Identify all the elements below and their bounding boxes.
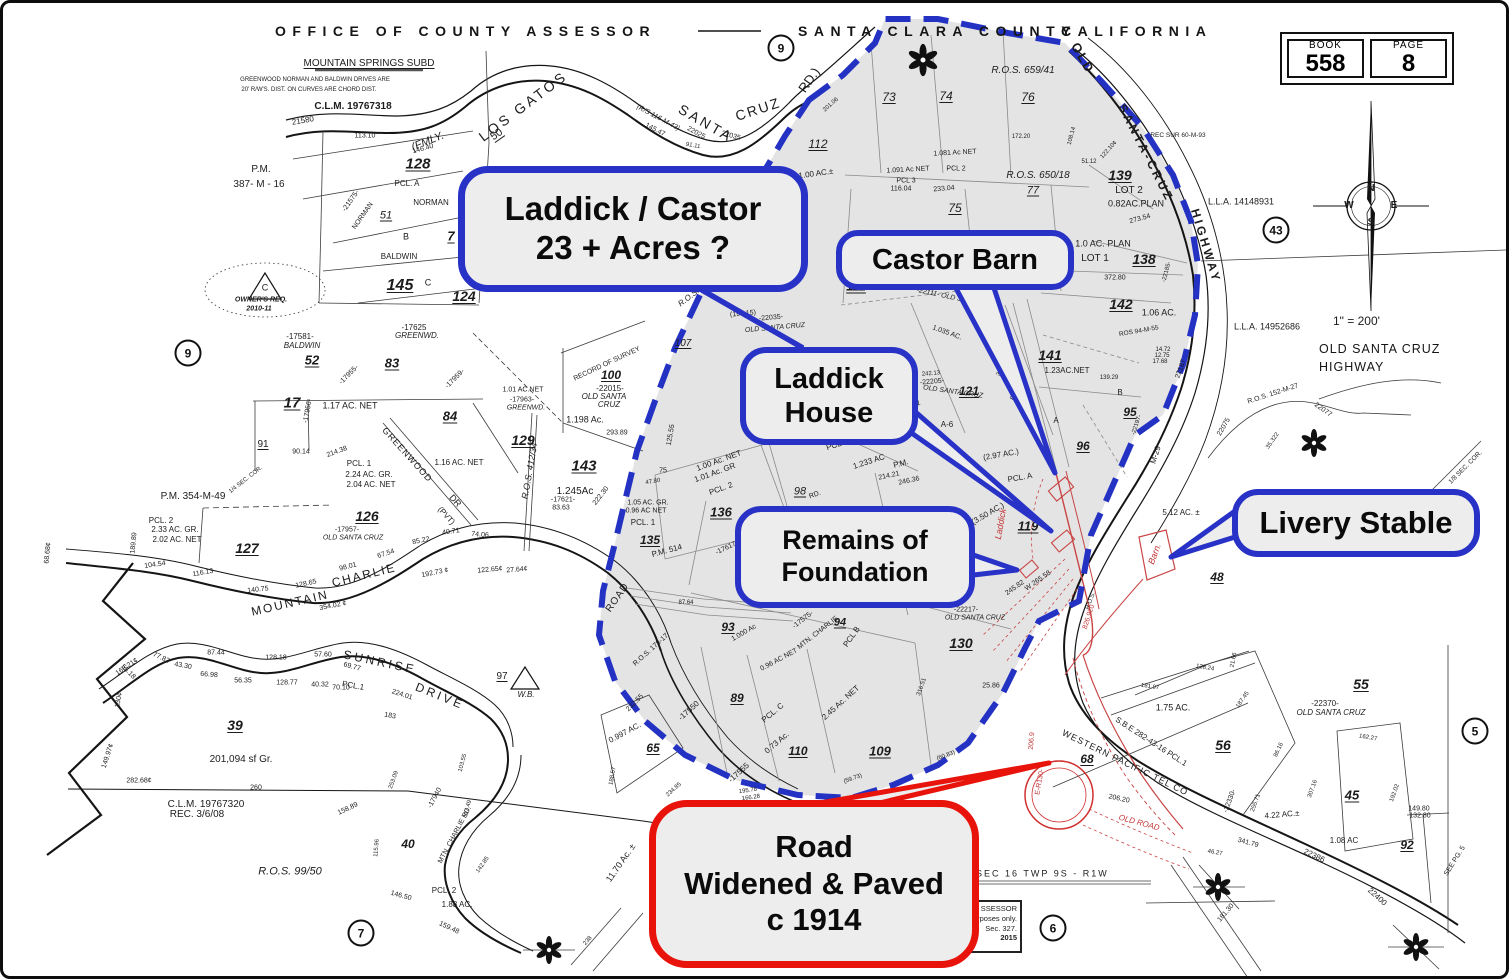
callout-laddick-house: Laddick House	[740, 347, 918, 445]
circled-number: 9	[175, 340, 202, 367]
book-cell: BOOK 558	[1287, 39, 1364, 78]
highway-label-line2: HIGHWAY	[1319, 359, 1440, 377]
circled-number: 5	[1462, 718, 1489, 745]
highway-label-line1: OLD SANTA CRUZ	[1319, 341, 1440, 359]
callout-text: Road	[775, 829, 853, 866]
callout-remains-of-foundation: Remains of Foundation	[735, 506, 975, 608]
page-number: 8	[1402, 52, 1415, 76]
callout-text: Laddick / Castor	[505, 190, 762, 229]
callout-text: House	[785, 396, 874, 430]
callout-text: Laddick	[774, 362, 884, 396]
callout-text: c 1914	[767, 902, 862, 939]
callout-castor-barn: Castor Barn	[836, 230, 1074, 290]
callout-text: 23 + Acres ?	[536, 229, 730, 268]
callout-text: Widened & Paved	[684, 866, 944, 903]
page-title-left: OFFICE OF COUNTY ASSESSOR	[275, 23, 656, 39]
circled-number: 7	[348, 920, 375, 947]
page-title-middle: SANTA CLARA COUNTY	[798, 23, 1077, 39]
assessor-map-page: MOUNTAIN SPRINGS SUBDGREENWOOD NORMAN AN…	[0, 0, 1509, 979]
page-title-right: CALIFORNIA	[1061, 23, 1212, 39]
book-number: 558	[1305, 52, 1345, 76]
callout-text: Castor Barn	[872, 243, 1038, 277]
callout-laddick-castor: Laddick / Castor 23 + Acres ?	[458, 166, 808, 292]
callout-livery-stable: Livery Stable	[1232, 489, 1480, 557]
callout-road-widened: Road Widened & Paved c 1914	[649, 800, 979, 968]
callout-text: Remains of	[782, 525, 928, 557]
circled-number: 9	[768, 35, 795, 62]
old-santa-cruz-highway-label: OLD SANTA CRUZ HIGHWAY	[1319, 341, 1440, 376]
book-page-box: BOOK 558 PAGE 8	[1280, 32, 1454, 85]
callout-text: Livery Stable	[1260, 505, 1453, 542]
circled-number: 6	[1040, 915, 1067, 942]
circled-number: 43	[1263, 217, 1290, 244]
callout-text: Foundation	[782, 557, 929, 589]
page-cell: PAGE 8	[1370, 39, 1447, 78]
